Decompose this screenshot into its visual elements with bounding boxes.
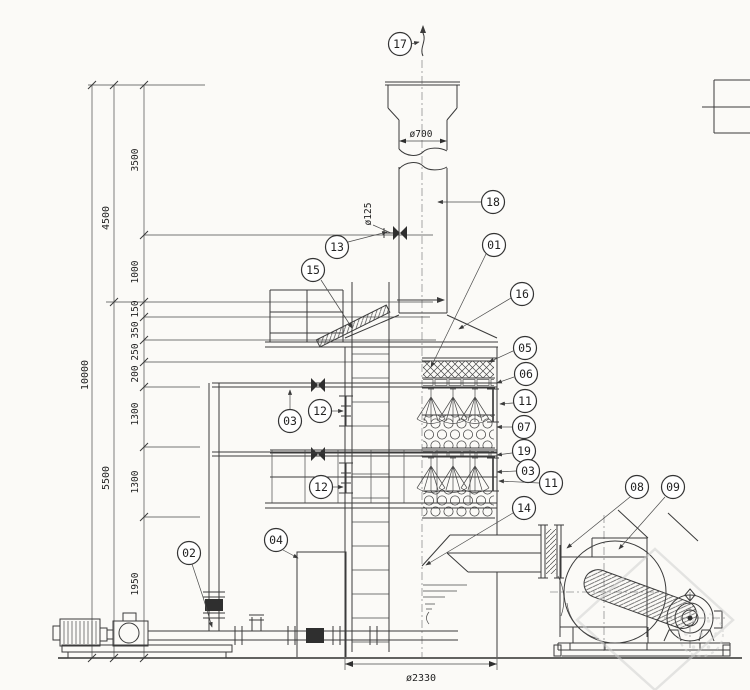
svg-text:08: 08 [630,480,644,494]
balloon-14: 14 [513,497,536,520]
svg-text:05: 05 [518,341,532,355]
exhaust-flow-arrow [422,26,424,56]
ladder [352,282,389,652]
balloon-12-lower: 12 [310,476,333,499]
svg-text:18: 18 [486,195,500,209]
balloon-01: 01 [483,234,506,257]
balloon-12-upper: 12 [309,400,332,423]
pipe-break-symbol [399,148,447,170]
balloon-02: 02 [178,542,201,565]
balloon-13: 13 [326,236,349,259]
balloon-11-upper: 11 [514,390,537,413]
top-flange [265,342,498,347]
suction-pipe [148,631,458,640]
exhaust-stack: ø700 ø125 [363,26,460,313]
fan-base-frame [554,627,730,656]
balloon-15: 15 [302,259,325,282]
svg-text:04: 04 [269,533,283,547]
riser-pipe [209,383,219,631]
svg-text:07: 07 [517,420,531,434]
spray-bank-lower [417,458,499,493]
svg-text:16: 16 [515,287,529,301]
dim-350: 350 [130,321,141,338]
svg-text:19: 19 [517,444,531,458]
svg-text:12: 12 [313,404,327,418]
hatched-strut [316,305,389,347]
outlet-duct [422,525,564,616]
svg-text:12: 12 [314,480,328,494]
dim-250: 250 [130,343,141,360]
svg-text:14: 14 [517,501,531,515]
packing-layer-lower [423,491,494,518]
demister-pad [423,361,494,378]
riser-valve-icon [205,599,223,611]
dim-overall: 10000 [80,360,91,390]
tower-dia-label: ø2330 [406,673,436,684]
detail-box [702,80,750,133]
flex-connector [546,529,556,574]
drain-valve-icon [393,226,407,240]
dim-1300b: 1300 [130,470,141,493]
dim-lower: 5500 [101,466,112,490]
scrubber-tower-drawing: 10000 4500 5500 3500 1000 150 350 250 20… [0,0,750,690]
balloon-09: 09 [662,476,685,499]
balloon-17: 17 [389,33,412,56]
dim-200: 200 [130,365,141,382]
svg-text:06: 06 [519,367,533,381]
pump-assembly [53,613,232,658]
water-level-symbol [423,585,467,609]
svg-text:09: 09 [666,480,680,494]
stack-dia-label: ø700 [410,129,433,140]
tower-internals [417,358,499,624]
dim-1300a: 1300 [130,402,141,425]
balloon-06: 06 [515,363,538,386]
balloon-19: 19 [513,440,536,463]
dim-150: 150 [130,300,141,317]
svg-text:15: 15 [306,263,320,277]
svg-text:01: 01 [487,238,501,252]
balloon-03-left: 03 [279,410,302,433]
balloon-11-lower: 11 [540,472,563,495]
dim-1950: 1950 [130,572,141,595]
dim-upper: 4500 [101,206,112,230]
svg-text:11: 11 [544,476,558,490]
packing-layer-upper [423,415,494,448]
dim-1000: 1000 [130,260,141,283]
balloon-03-right: 03 [517,460,540,483]
pump-casing [113,621,148,646]
pipe-valve-icon [306,628,324,643]
svg-text:03: 03 [521,464,535,478]
balloon-18: 18 [482,191,505,214]
balloon-04: 04 [265,529,288,552]
balloon-05: 05 [514,337,537,360]
svg-text:13: 13 [330,240,344,254]
tower-diameter-dim: ø2330 [345,659,497,684]
dimension-chain: 10000 4500 5500 3500 1000 150 350 250 20… [80,81,436,662]
drawing-sheet: 10000 4500 5500 3500 1000 150 350 250 20… [0,0,750,690]
svg-text:17: 17 [393,37,407,51]
drain-dia-label: ø125 [363,203,374,226]
balloon-16: 16 [511,283,534,306]
svg-text:03: 03 [283,414,297,428]
svg-text:02: 02 [182,546,196,560]
balloon-07: 07 [513,416,536,439]
dim-3500: 3500 [130,148,141,171]
svg-text:11: 11 [518,394,532,408]
balloon-08: 08 [626,476,649,499]
control-valve-lower [339,463,353,493]
